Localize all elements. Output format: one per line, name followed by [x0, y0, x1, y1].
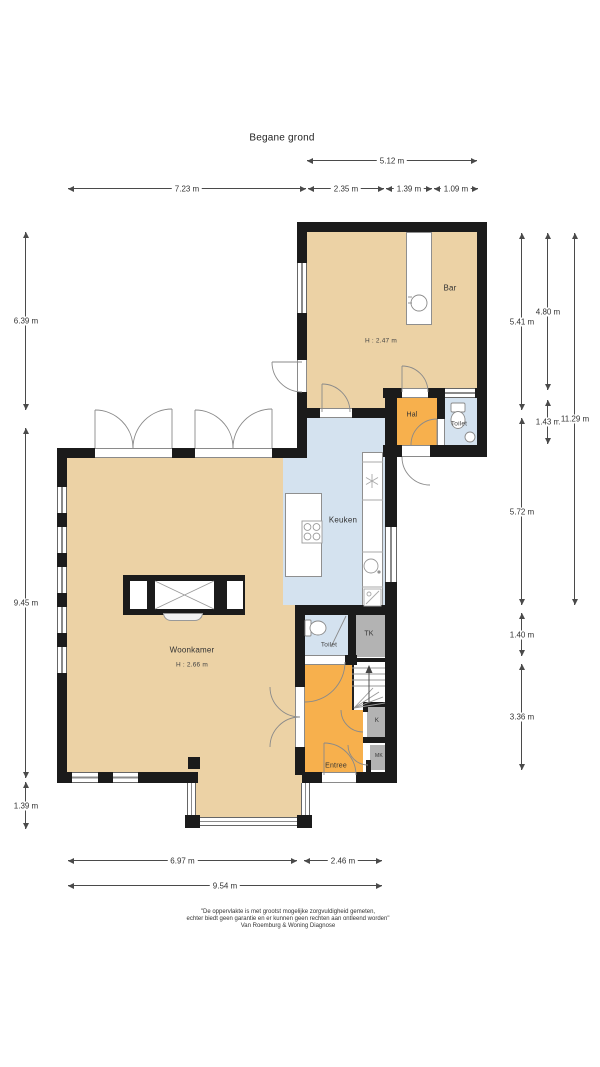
dim-right-1-40: 1.40 m [521, 613, 522, 656]
dim-right-11-29: 11.29 m [574, 233, 575, 605]
window-bar-west [297, 263, 307, 313]
fireplace-hearth [163, 613, 203, 621]
dim-top-2-35: 2.35 m [308, 188, 384, 189]
dim-left-9-45: 9.45 m [25, 428, 26, 778]
kitchen-island [285, 493, 322, 577]
room-label-mk: MK [375, 753, 383, 759]
wall-k-north [363, 702, 397, 707]
room-label-hal: Hal [406, 412, 417, 419]
disclaimer-line-2: echter biedt geen garantie en er kunnen … [187, 916, 390, 922]
kitchen-counter [362, 452, 383, 610]
room-label-bar: Bar [443, 284, 456, 293]
french-door-opening-right [195, 448, 272, 458]
wall-bar-north [297, 222, 487, 232]
fireplace-center-box [155, 581, 214, 609]
door-opening-hal-toilet [437, 419, 445, 445]
dim-top-7-23: 7.23 m [68, 188, 306, 189]
bay-window-right [301, 783, 310, 815]
dim-right-1-43: 1.43 m [547, 400, 548, 444]
dim-right-5-72: 5.72 m [521, 418, 522, 605]
room-label-entree: Entree [325, 763, 347, 770]
floor-plan-page: Begane grond [0, 0, 600, 1067]
wall-k-mk-divider [363, 737, 397, 743]
window-west-2 [57, 527, 67, 553]
ceiling-height-bar: H : 2.47 m [365, 338, 397, 345]
fireplace-right-slot [227, 581, 243, 609]
room-woonkamer-floor-strip [283, 605, 295, 772]
room-bar-floor [307, 232, 477, 408]
wall-k-west-stub [363, 702, 368, 712]
door-opening-bar-west [297, 360, 307, 392]
bay-window-floor [187, 772, 302, 818]
front-door-opening [322, 772, 356, 783]
window-keuken-east [385, 527, 397, 582]
dim-bottom-2-46: 2.46 m [304, 860, 382, 861]
bay-post-right [297, 815, 312, 828]
wall-hal-toilet-divider [437, 398, 445, 419]
dim-left-1-39: 1.39 m [25, 782, 26, 829]
dim-right-4-80: 4.80 m [547, 233, 548, 390]
room-toilet-bottom-floor [305, 615, 348, 655]
window-west-4 [57, 607, 67, 633]
wall-keuken-south [295, 605, 397, 615]
room-label-toilet-bottom: Toilet [321, 642, 337, 649]
door-opening-toilet-bottom [305, 655, 345, 665]
page-title: Begane grond [249, 133, 314, 144]
room-label-keuken: Keuken [329, 516, 357, 525]
door-opening-bar-hal [402, 388, 428, 398]
double-door-opening-woonkamer [295, 687, 305, 747]
dim-bottom-9-54: 9.54 m [68, 885, 382, 886]
window-west-3 [57, 567, 67, 593]
ceiling-height-woonkamer: H : 2.66 m [176, 662, 208, 669]
dim-bottom-6-97: 6.97 m [68, 860, 297, 861]
bay-post-left [185, 815, 200, 828]
french-door-opening-left [95, 448, 172, 458]
room-label-woonkamer: Woonkamer [170, 646, 215, 655]
dim-right-5-41: 5.41 m [521, 233, 522, 410]
dim-top-1-39: 1.39 m [386, 188, 432, 189]
dim-left-6-39: 6.39 m [25, 232, 26, 410]
disclaimer-line-1: "De oppervlakte is met grootst mogelijke… [201, 909, 375, 915]
door-opening-bar-keuken [320, 408, 352, 418]
structural-column [188, 757, 200, 769]
wall-mk-west-stub [366, 760, 371, 772]
window-south-2 [113, 772, 138, 783]
disclaimer-line-3: Van Roemburg & Woning Diagnose [241, 923, 336, 929]
dim-top-1-09: 1.09 m [434, 188, 478, 189]
wall-east-main [385, 388, 397, 783]
fireplace-left-slot [130, 581, 147, 609]
bay-window-bottom [200, 817, 297, 826]
window-toilet-top [445, 388, 475, 398]
wall-bar-west [297, 222, 307, 458]
room-label-tk: TK [364, 631, 373, 638]
window-south-1 [72, 772, 98, 783]
window-west-1 [57, 487, 67, 513]
room-hal-floor [390, 398, 437, 445]
wall-tk-south [348, 658, 397, 662]
bar-counter [406, 232, 432, 325]
bay-window-left [187, 783, 196, 815]
room-label-toilet-top: Toilet [451, 421, 467, 428]
door-opening-hal-exterior [402, 445, 430, 457]
window-west-5 [57, 647, 67, 673]
dim-top-5-12: 5.12 m [307, 160, 477, 161]
dim-right-3-36: 3.36 m [521, 664, 522, 770]
wall-barblock-south [383, 445, 487, 457]
room-label-k: K [375, 718, 379, 724]
wall-bar-east [477, 222, 487, 457]
